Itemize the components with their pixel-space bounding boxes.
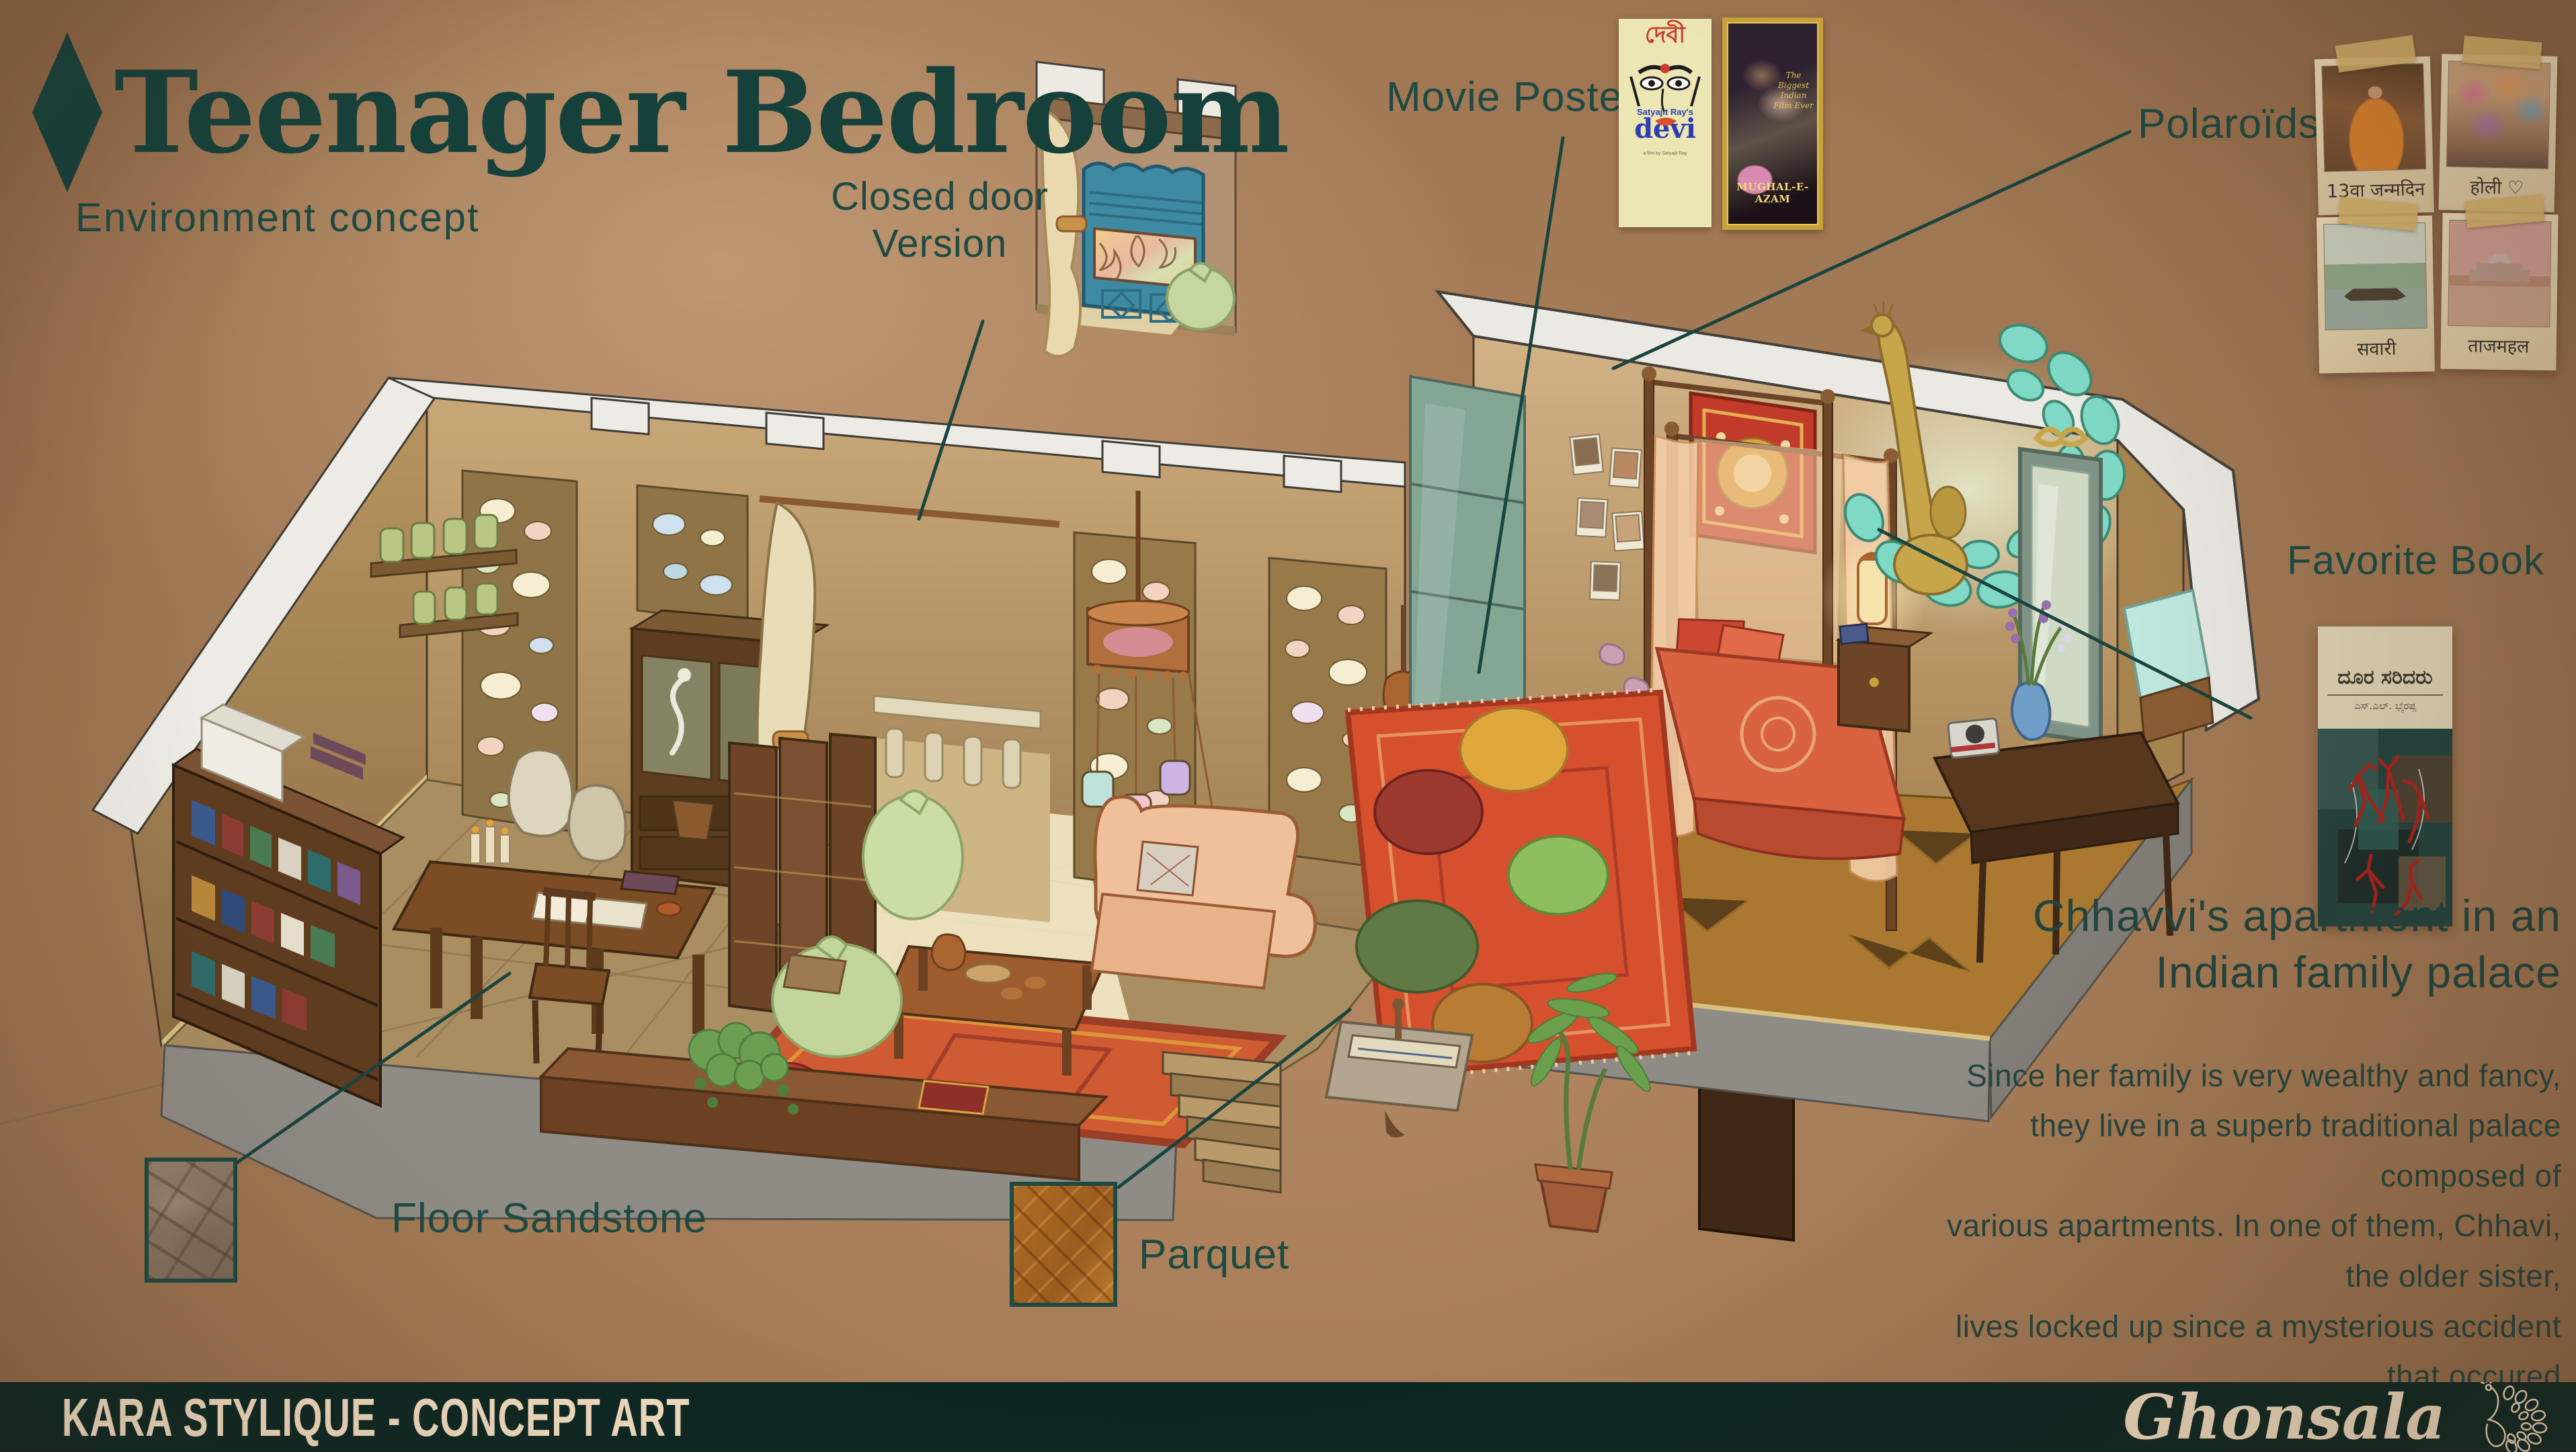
book-title-band: ದೂರ ಸರಿದರು ಎಸ್.ಎಲ್. ಭೈರಪ್ಪ bbox=[2318, 627, 2452, 729]
cloth-on-beanbag bbox=[784, 955, 846, 994]
title-block: Teenager Bedroom bbox=[32, 32, 1289, 192]
description-heading-line2: Indian family palace bbox=[1902, 944, 2561, 1000]
footer-bar: KARA STYLIQUE - CONCEPT ART Ghonsala bbox=[0, 1382, 2576, 1452]
polaroid-image-tajmahal bbox=[2448, 220, 2551, 327]
page-subtitle: Environment concept bbox=[75, 194, 480, 242]
movie-poster-label: Movie Poster bbox=[1386, 73, 1638, 122]
concept-art-board: Teenager Bedroom Environment concept Clo… bbox=[0, 0, 2576, 1452]
devi-movie-poster: দেবী Satyajit Ray's devi a film by Satya… bbox=[1619, 19, 1712, 227]
closed-door-label-line2: Version bbox=[826, 220, 1054, 268]
polaroids-label: Polaroïds bbox=[2138, 99, 2320, 149]
book-author: ಎಸ್.ಎಲ್. ಭೈರಪ್ಪ bbox=[2318, 700, 2452, 712]
parquet-swatch bbox=[1010, 1182, 1117, 1307]
description-line: various apartments. In one of them, Chha… bbox=[1902, 1201, 2561, 1301]
book-divider bbox=[2327, 694, 2443, 696]
book-title: ದೂರ ಸರಿದರು bbox=[2318, 627, 2452, 689]
floor-sandstone-label: Floor Sandstone bbox=[391, 1194, 707, 1244]
parquet-label: Parquet bbox=[1139, 1230, 1289, 1280]
diamond-icon bbox=[32, 32, 102, 192]
polaroid-caption: सवारी bbox=[2325, 329, 2428, 367]
favorite-book-cover: ದೂರ ಸರಿದರು ಎಸ್.ಎಲ್. ಭೈರಪ್ಪ bbox=[2318, 627, 2452, 926]
page-title: Teenager Bedroom bbox=[114, 56, 1289, 169]
red-book bbox=[919, 1081, 988, 1114]
closed-door-label: Closed door Version bbox=[826, 173, 1054, 267]
mughal-title-text: MUGHAL-E-AZAM bbox=[1728, 181, 1817, 205]
peacock-logo-icon bbox=[2464, 1382, 2559, 1452]
favorite-book-label: Favorite Book bbox=[2287, 536, 2544, 585]
polaroid-photo: होली ♡ bbox=[2439, 54, 2558, 212]
mughal-tagline: The Biggest Indian Film Ever bbox=[1773, 71, 1814, 111]
description-line: Since her family is very wealthy and fan… bbox=[1902, 1051, 2561, 1101]
polaroid-photo: सवारी bbox=[2317, 216, 2435, 374]
sandstone-swatch bbox=[145, 1158, 237, 1283]
studio-name: Ghonsala bbox=[2123, 1386, 2446, 1448]
description-heading: Chhavvi's apartment in an Indian family … bbox=[1902, 887, 2561, 1001]
polaroid-photo: ताजमहल bbox=[2440, 213, 2558, 370]
description-heading-line1: Chhavvi's apartment in an bbox=[1902, 887, 2561, 944]
favorite-book-on-nightstand bbox=[1840, 624, 1868, 644]
jali-panel-icon bbox=[637, 485, 748, 625]
closed-door-label-line1: Closed door bbox=[826, 173, 1054, 220]
polaroid-image-birthday bbox=[2321, 63, 2426, 172]
polaroid-photo: 13वा जन्मदिन bbox=[2315, 56, 2434, 215]
artist-credit: KARA STYLIQUE - CONCEPT ART bbox=[62, 1386, 690, 1448]
study-room bbox=[0, 378, 1421, 1220]
polaroid-camera bbox=[1947, 718, 1999, 758]
polaroid-image-boat bbox=[2323, 223, 2427, 331]
polaroid-caption: ताजमहल bbox=[2448, 326, 2550, 364]
studio-block: Ghonsala bbox=[2123, 1382, 2559, 1452]
description-block: Chhavvi's apartment in an Indian family … bbox=[1902, 887, 2561, 1452]
devi-fine-print: a film by Satyajit Ray bbox=[1619, 151, 1712, 157]
devi-header-text: দেবী bbox=[1619, 23, 1712, 48]
mughal-poster-art: The Biggest Indian Film Ever MUGHAL-E-AZ… bbox=[1727, 22, 1818, 225]
devi-face-art bbox=[1619, 54, 1712, 134]
description-line: they live in a superb traditional palace… bbox=[1902, 1100, 2561, 1201]
polaroid-image-holi bbox=[2446, 61, 2550, 169]
mughal-e-azam-poster: The Biggest Indian Film Ever MUGHAL-E-AZ… bbox=[1722, 17, 1823, 230]
